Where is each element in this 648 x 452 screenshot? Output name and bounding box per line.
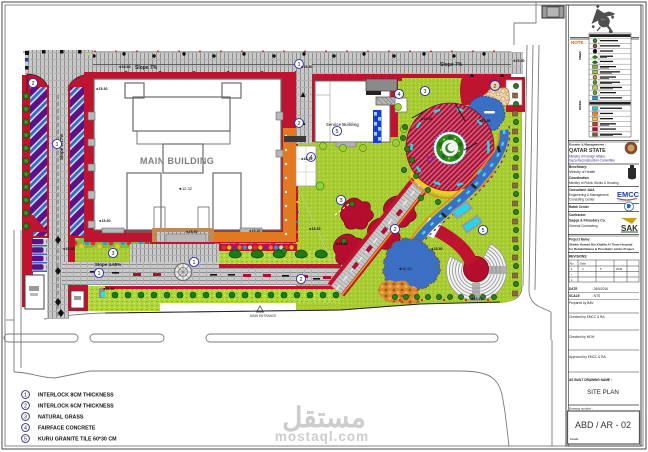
svg-text:INTERLOCK 6CM THICKNESS: INTERLOCK 6CM THICKNESS: [38, 404, 114, 410]
svg-text:Prepared by BAV:: Prepared by BAV:: [569, 301, 594, 305]
svg-text:◄15.30: ◄15.30: [478, 119, 491, 123]
svg-text:◄11.52: ◄11.52: [398, 266, 412, 271]
svg-text:5: 5: [481, 228, 484, 234]
svg-text:Donator & Managements :: Donator & Managements :: [569, 143, 606, 147]
svg-text:for Rehabilitation & Prostheti: for Rehabilitation & Prosthetic Limbs Pr…: [569, 247, 634, 251]
svg-text:PAVING: PAVING: [578, 101, 582, 110]
svg-text:3: 3: [24, 415, 27, 421]
svg-text:◄15.30: ◄15.30: [248, 229, 261, 233]
svg-text:NATURAL GRASS: NATURAL GRASS: [38, 415, 84, 421]
svg-text:2: 2: [31, 81, 34, 87]
svg-text:QATAR STATE: QATAR STATE: [569, 148, 606, 154]
svg-text:Rafah Center: Rafah Center: [569, 205, 590, 209]
svg-text:r: r: [571, 273, 572, 277]
svg-text:Slope 4.65%: Slope 4.65%: [95, 262, 121, 267]
svg-text:◄15.30: ◄15.30: [300, 157, 313, 161]
svg-text:◄15.30: ◄15.30: [95, 87, 108, 91]
svg-text:Slope 7%: Slope 7%: [440, 62, 463, 68]
svg-text:Gaza Reconstruction Committee: Gaza Reconstruction Committee: [569, 159, 615, 163]
svg-text:4: 4: [397, 92, 400, 98]
svg-text:Contractor:: Contractor:: [569, 213, 586, 217]
svg-text:◄15.30: ◄15.30: [308, 227, 321, 231]
svg-text:SCALE: SCALE: [569, 294, 580, 298]
svg-text:◄15.30: ◄15.30: [430, 247, 443, 251]
svg-text:Checked by MOH:: Checked by MOH:: [569, 335, 595, 339]
svg-text:Ministry of Health: Ministry of Health: [569, 170, 595, 174]
svg-text:◄15.30: ◄15.30: [185, 230, 198, 234]
svg-text:: NTS: : NTS: [592, 294, 600, 298]
svg-text:◄15.30: ◄15.30: [512, 59, 525, 63]
svg-text:2: 2: [393, 227, 396, 233]
svg-text:2046: 2046: [616, 267, 623, 271]
svg-text:◄15.30: ◄15.30: [62, 247, 75, 251]
svg-text:2: 2: [24, 404, 27, 410]
svg-text:Sheikh Hamad Bin Khalifa Al Th: Sheikh Hamad Bin Khalifa Al Thani Hospit…: [569, 243, 633, 247]
svg-text:DATE: DATE: [569, 287, 577, 291]
svg-text:REVISIONS:: REVISIONS:: [569, 255, 587, 259]
svg-text:AS BUILT DRAWING NAME :: AS BUILT DRAWING NAME :: [569, 378, 612, 382]
svg-text:3: 3: [423, 89, 426, 95]
svg-text:: 26/5/2016: : 26/5/2016: [592, 287, 608, 291]
svg-text:No.: No.: [570, 262, 575, 266]
svg-text:2: 2: [494, 84, 497, 90]
svg-text:5: 5: [24, 437, 27, 443]
svg-text:Saqqa & Khoudary Co.: Saqqa & Khoudary Co.: [569, 219, 606, 223]
svg-text:1: 1: [24, 393, 27, 399]
svg-text:Date: Date: [580, 262, 586, 266]
svg-text:KURU GRANITE TILE 60*30 CM: KURU GRANITE TILE 60*30 CM: [38, 437, 117, 443]
svg-text:Drawing number :: Drawing number :: [569, 407, 593, 411]
svg-text:Slope 7%: Slope 7%: [135, 65, 158, 71]
svg-text:3: 3: [111, 251, 114, 257]
svg-text:◄15.30: ◄15.30: [335, 242, 348, 246]
svg-text:Project Name:: Project Name:: [569, 238, 590, 242]
svg-text:SITE PLAN: SITE PLAN: [587, 389, 619, 396]
svg-text:3: 3: [339, 198, 342, 204]
svg-text:5: 5: [335, 129, 338, 135]
svg-text:Approved by EMCC & RA:: Approved by EMCC & RA:: [569, 355, 606, 359]
svg-text:2: 2: [299, 277, 302, 283]
svg-text:◄15.30: ◄15.30: [420, 117, 433, 121]
svg-text:◄12.32: ◄12.32: [178, 186, 193, 191]
svg-text:Checked by EMCC & RA:: Checked by EMCC & RA:: [569, 315, 605, 319]
svg-text:◄15.30: ◄15.30: [98, 219, 111, 223]
svg-text:Consultant :AAA: Consultant :AAA: [569, 188, 595, 192]
svg-text:◄15.30: ◄15.30: [300, 65, 313, 69]
svg-text:◄15.30: ◄15.30: [118, 65, 131, 69]
svg-text:Details: Details: [570, 437, 579, 441]
svg-text:FAIRFACE CONCRETE: FAIRFACE CONCRETE: [38, 426, 96, 432]
svg-text:Ministry of Public Works & Hou: Ministry of Public Works & Housing: [569, 181, 619, 185]
svg-text:1: 1: [55, 142, 58, 148]
svg-text:mostaql.com: mostaql.com: [275, 429, 369, 444]
svg-text:Consulting Center: Consulting Center: [569, 198, 595, 202]
svg-text:ABD / AR - 02: ABD / AR - 02: [575, 420, 631, 430]
svg-text:Service Building: Service Building: [326, 122, 359, 127]
svg-text:NOTE :: NOTE :: [571, 40, 587, 45]
svg-text:General Contracting: General Contracting: [569, 224, 598, 228]
svg-text:1: 1: [97, 271, 100, 277]
svg-text:2: 2: [297, 121, 300, 127]
svg-text:Engineering & Management: Engineering & Management: [569, 193, 609, 197]
svg-text:1: 1: [192, 260, 195, 266]
svg-text:Beneficiary:: Beneficiary:: [569, 165, 587, 169]
svg-text:Coordination: Coordination: [569, 176, 589, 180]
svg-text:INTERLOCK 8CM THICKNESS: INTERLOCK 8CM THICKNESS: [38, 393, 114, 399]
svg-text:4: 4: [24, 426, 27, 432]
svg-text:EMCC: EMCC: [617, 190, 640, 199]
svg-text:MAIN BUILDING: MAIN BUILDING: [140, 156, 214, 166]
svg-text:TREES: TREES: [578, 51, 582, 60]
svg-text:◄15.30: ◄15.30: [102, 287, 115, 291]
svg-text:◄15.30: ◄15.30: [470, 297, 483, 301]
svg-text:MAIN ENTRANCE: MAIN ENTRANCE: [250, 314, 276, 318]
